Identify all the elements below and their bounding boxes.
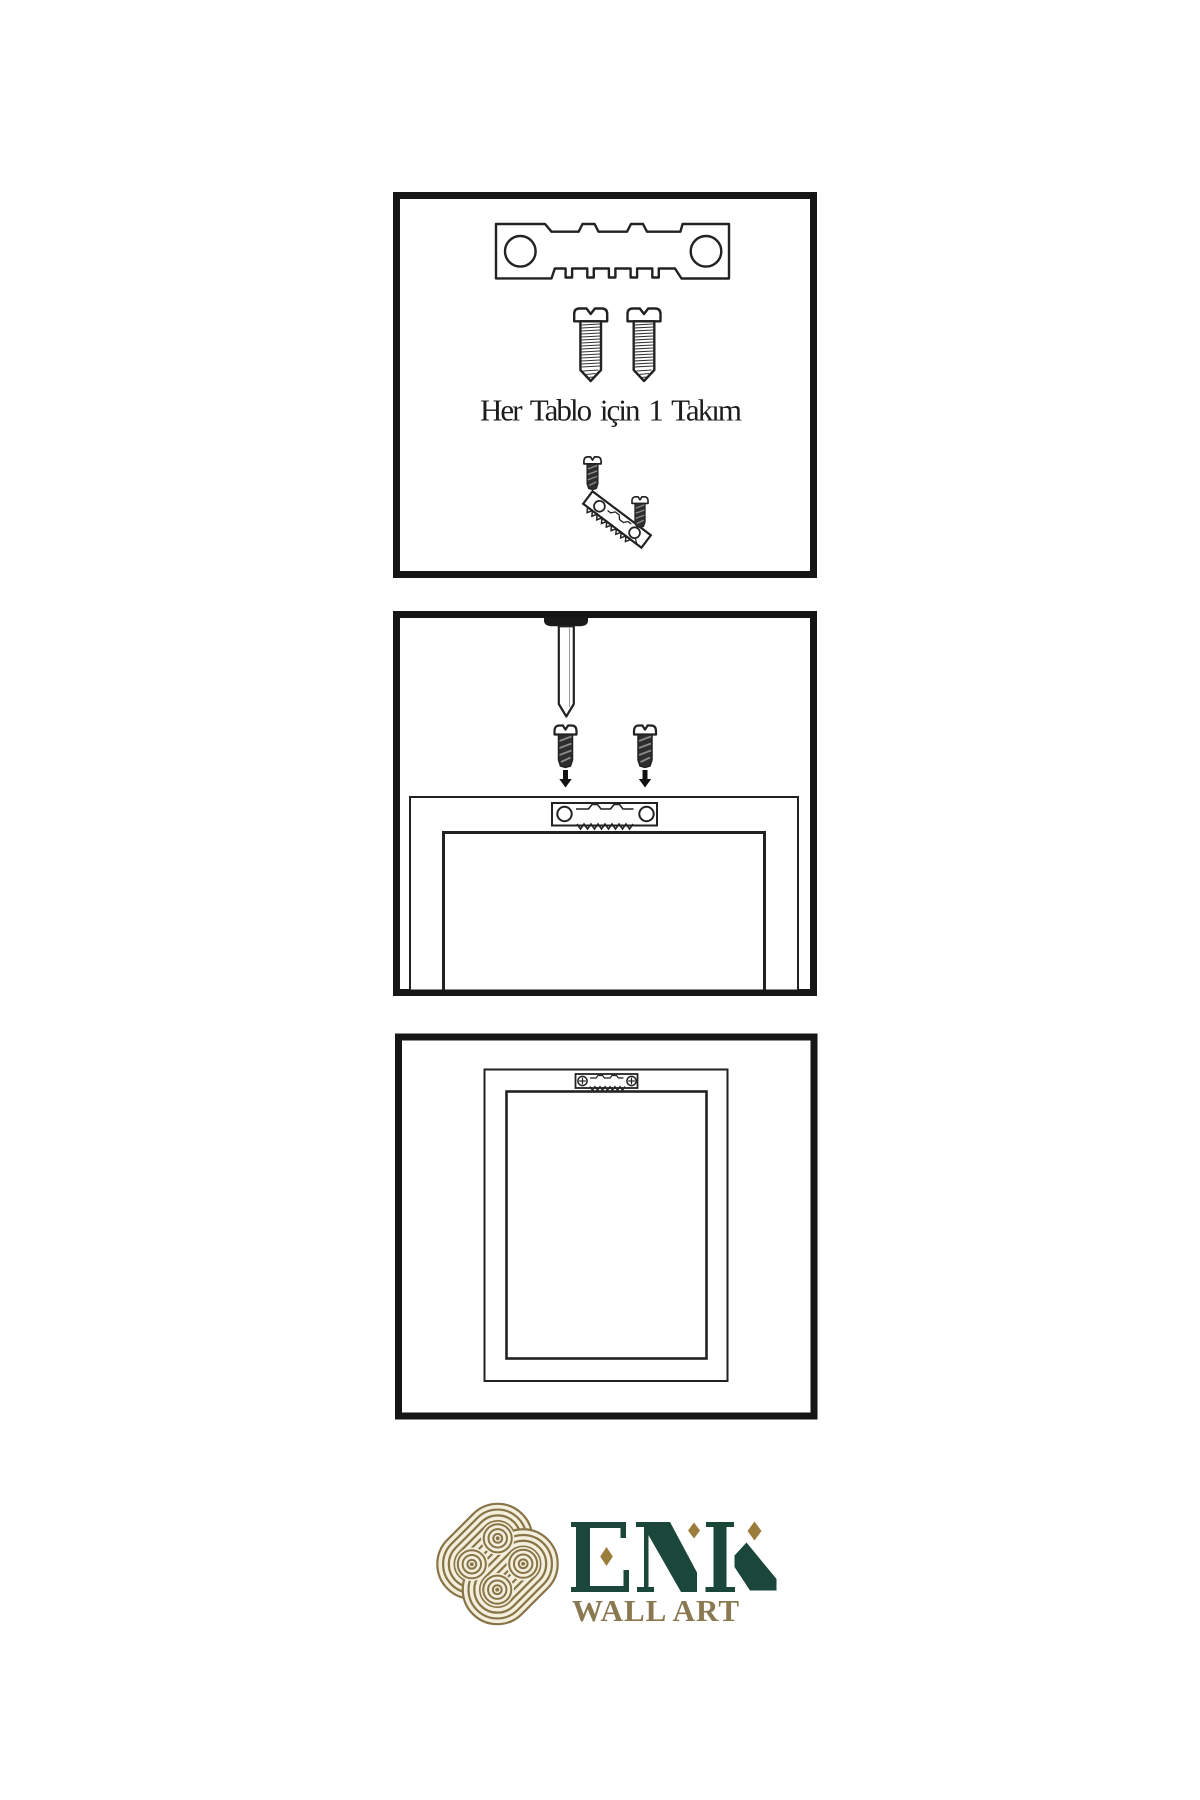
svg-text:WALL ART: WALL ART [572,1593,740,1628]
svg-text:Her Tablo için 1 Takım: Her Tablo için 1 Takım [480,393,742,428]
